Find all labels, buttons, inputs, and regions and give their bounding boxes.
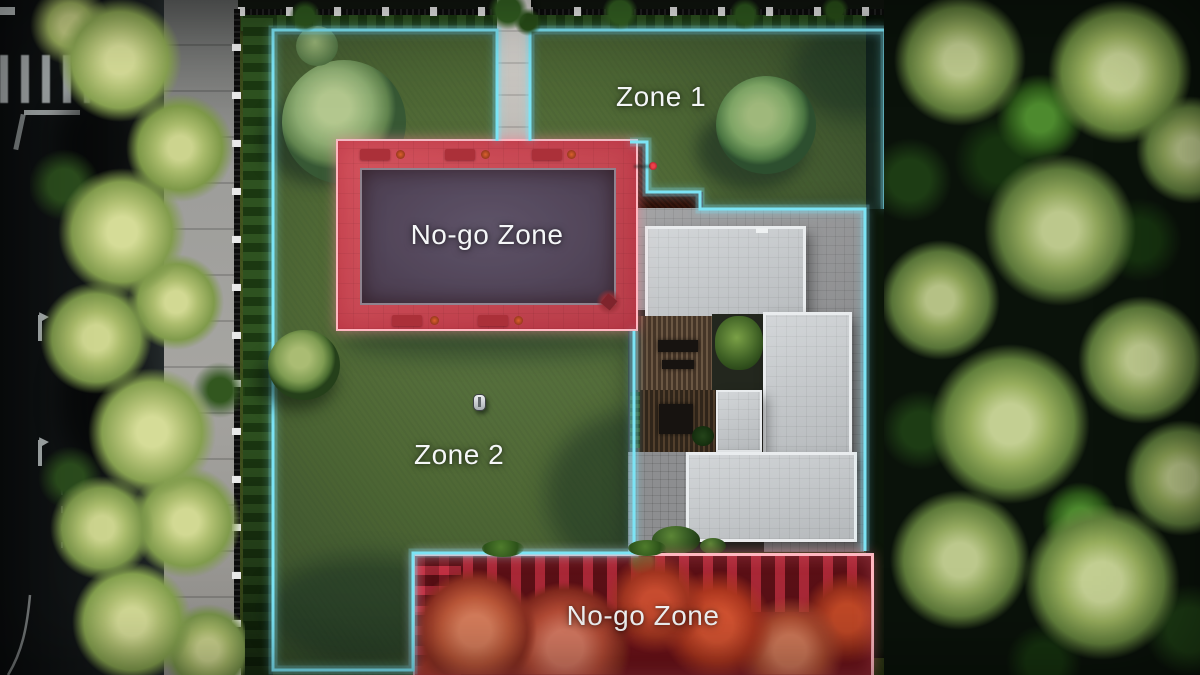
no-go-zone-label-wrap: No-go Zone — [415, 556, 871, 675]
patio-furniture — [659, 404, 693, 434]
house-roof-detail — [756, 228, 768, 233]
road-marking — [0, 7, 15, 15]
tree — [268, 330, 340, 400]
no-go-zone-label: No-go Zone — [567, 600, 720, 632]
house-roof — [716, 390, 762, 452]
courtyard-tree — [715, 316, 763, 370]
wood-deck — [636, 316, 716, 390]
mower-zone-map: No-go Zone No-go Zone Zone 1 Zone 2 — [0, 0, 1200, 675]
courtyard-tree — [692, 426, 714, 446]
hedge — [243, 13, 273, 675]
robot-mower-icon[interactable] — [473, 394, 486, 411]
zone1-label: Zone 1 — [616, 81, 706, 113]
no-go-zone-label: No-go Zone — [411, 219, 564, 251]
patio-furniture — [662, 360, 694, 369]
no-go-zone-garden[interactable]: No-go Zone — [413, 553, 874, 675]
street-trees — [30, 0, 245, 675]
house-roof — [763, 312, 852, 470]
patio-furniture — [658, 340, 698, 352]
forest — [884, 0, 1200, 675]
no-go-zone-pool[interactable]: No-go Zone — [336, 139, 638, 331]
hedge — [630, 392, 640, 448]
bush — [482, 540, 524, 557]
flower — [649, 162, 657, 170]
zone2-label: Zone 2 — [414, 439, 504, 471]
no-go-zone-label-wrap: No-go Zone — [338, 141, 636, 329]
bush — [700, 538, 726, 554]
tree — [716, 76, 816, 174]
overhanging-foliage — [270, 0, 870, 40]
house-roof — [686, 452, 857, 542]
bush — [628, 540, 666, 556]
